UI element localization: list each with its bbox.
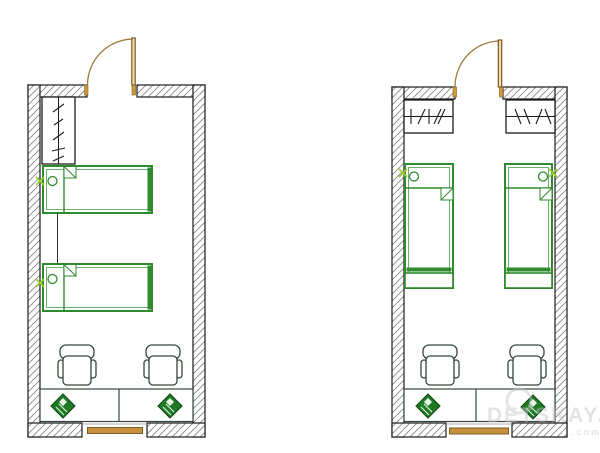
bed-icon <box>43 166 152 213</box>
wardrobe-icon <box>42 97 75 164</box>
plan-variant-1 <box>28 38 205 437</box>
wall-left <box>28 85 40 437</box>
office-chair-icon <box>58 345 96 385</box>
watermark-suffix: .com <box>572 427 600 437</box>
wall-right <box>193 85 205 437</box>
door-icon <box>85 38 136 95</box>
plan-variant-2 <box>392 40 567 437</box>
wardrobe-icon <box>506 100 555 133</box>
bed-icon <box>43 264 152 311</box>
watermark-text: DETSKAYA <box>487 404 600 427</box>
door-leaf <box>498 40 501 87</box>
door-leaf <box>132 38 135 85</box>
pillow-icon <box>48 177 57 186</box>
door-jamb-left <box>453 87 457 97</box>
door-icon <box>453 40 503 97</box>
door-jamb-left <box>85 85 89 95</box>
window-icon <box>82 424 147 434</box>
floor-plans-canvas: DETSKAYA .com <box>0 0 600 453</box>
bed-icon <box>505 164 552 288</box>
wall-bottom-right-segment <box>147 423 205 437</box>
wall-right <box>555 87 567 437</box>
office-chair-icon <box>144 345 182 385</box>
door-swing-arc <box>455 41 500 87</box>
floor-plans-image: DETSKAYA .com <box>0 0 600 453</box>
wardrobe-icon <box>404 100 453 133</box>
pillow-icon <box>410 172 419 181</box>
wall-left <box>392 87 404 437</box>
door-swing-arc <box>88 39 134 85</box>
pillow-icon <box>48 275 57 284</box>
door-jamb-right <box>132 85 136 95</box>
wall-bottom-left-segment <box>392 423 446 437</box>
pillow-icon <box>539 172 548 181</box>
wall-bottom-left-segment <box>28 423 82 437</box>
office-chair-icon <box>508 345 546 385</box>
door-jamb-right <box>500 87 504 97</box>
office-chair-icon <box>421 345 459 385</box>
bed-icon <box>405 164 453 288</box>
